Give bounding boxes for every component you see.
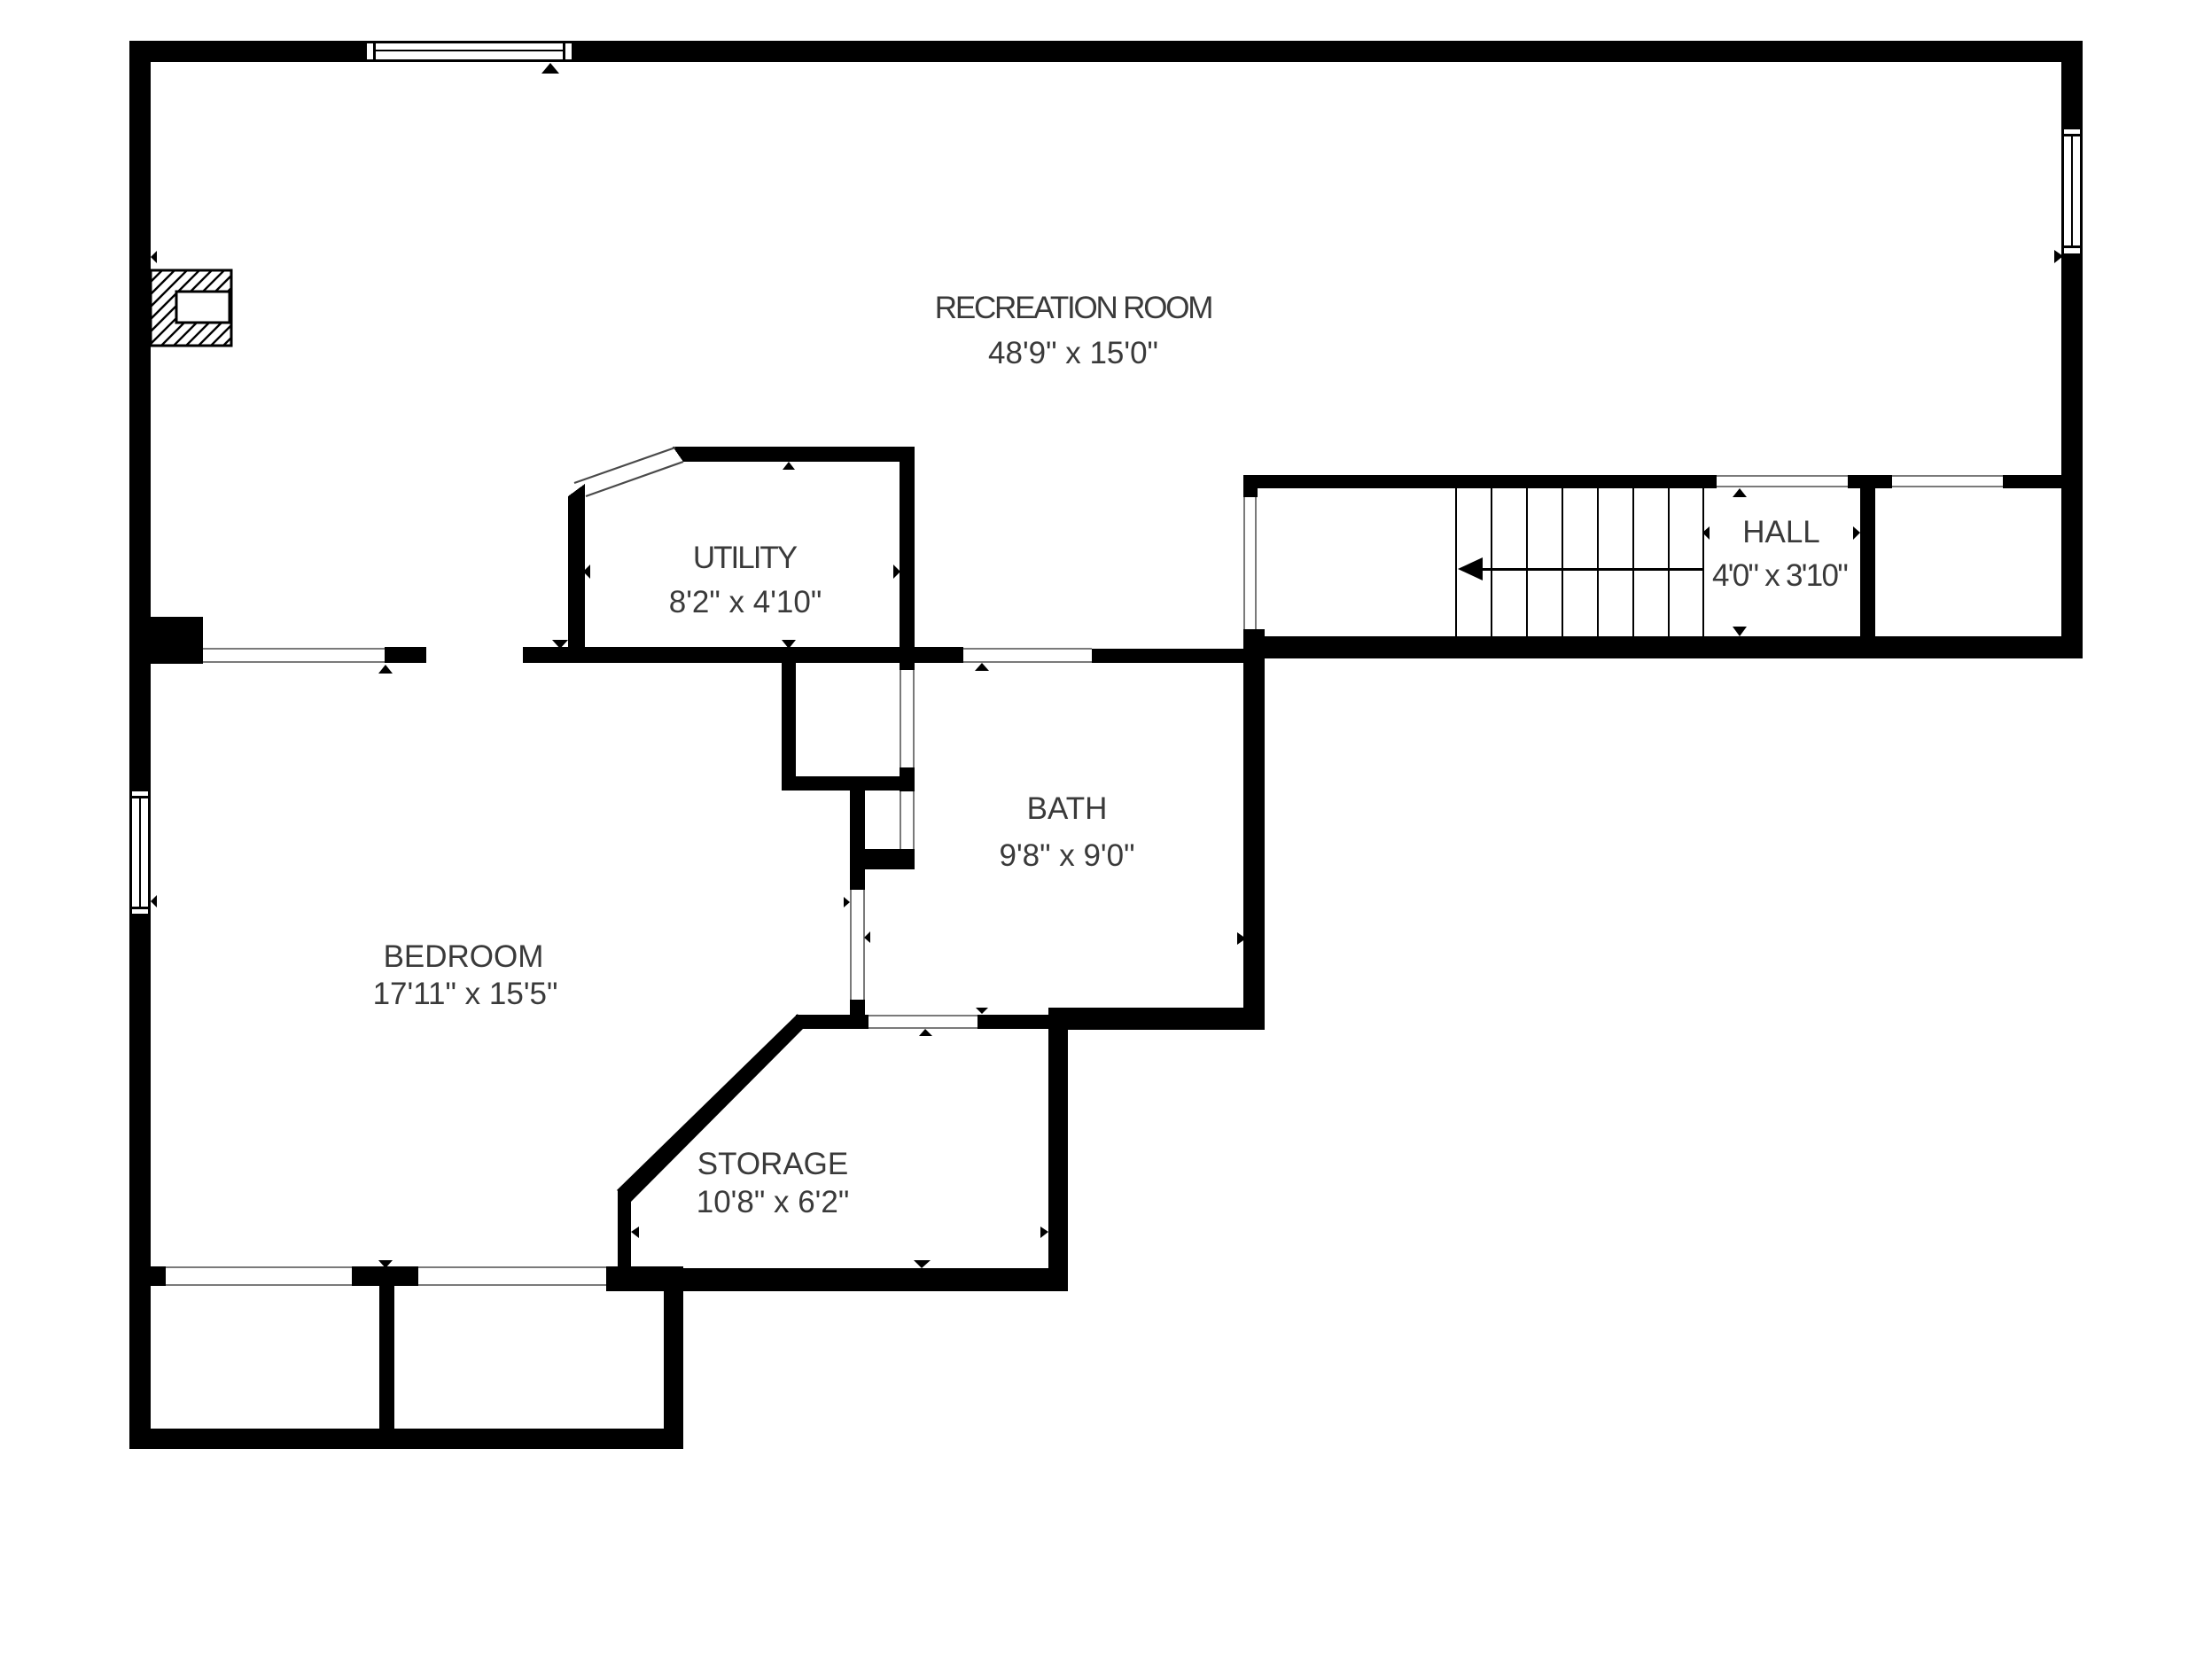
svg-text:8'2" x 4'10": 8'2" x 4'10" [669,585,822,619]
svg-text:RECREATION ROOM: RECREATION ROOM [935,291,1212,325]
svg-text:STORAGE: STORAGE [697,1147,849,1181]
svg-text:HALL: HALL [1742,515,1820,549]
svg-text:48'9" x 15'0": 48'9" x 15'0" [988,336,1158,370]
svg-text:9'8" x 9'0": 9'8" x 9'0" [999,838,1134,873]
svg-text:UTILITY: UTILITY [693,541,798,575]
svg-text:BEDROOM: BEDROOM [384,939,544,974]
svg-text:BATH: BATH [1027,791,1108,826]
svg-text:10'8" x 6'2": 10'8" x 6'2" [697,1185,850,1219]
svg-text:4'0" x 3'10": 4'0" x 3'10" [1712,558,1847,593]
svg-text:17'11" x 15'5": 17'11" x 15'5" [373,977,558,1011]
